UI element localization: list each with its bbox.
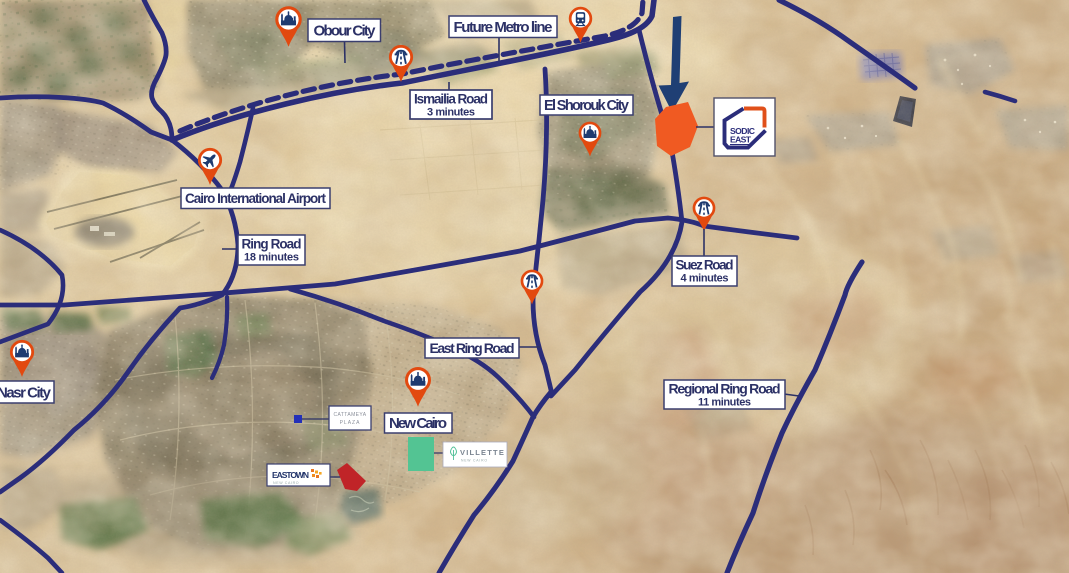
svg-text:4 minutes: 4 minutes xyxy=(681,273,729,285)
svg-text:Obour City: Obour City xyxy=(314,23,377,40)
svg-text:Nasr City: Nasr City xyxy=(0,385,52,402)
svg-text:CATTAMEYA: CATTAMEYA xyxy=(333,412,366,418)
svg-text:EAST: EAST xyxy=(730,135,752,145)
svg-text:Regional Ring Road: Regional Ring Road xyxy=(669,381,781,397)
svg-text:PLAZA: PLAZA xyxy=(340,420,361,426)
svg-text:Ring Road: Ring Road xyxy=(242,237,302,252)
svg-text:VILLETTE: VILLETTE xyxy=(460,448,505,457)
svg-text:NEW CAIRO: NEW CAIRO xyxy=(461,459,488,463)
svg-text:Ismailia Road: Ismailia Road xyxy=(414,92,488,107)
svg-text:EASTOWN: EASTOWN xyxy=(272,470,309,480)
svg-text:Suez Road: Suez Road xyxy=(676,258,734,273)
svg-text:3 minutes: 3 minutes xyxy=(427,107,475,119)
svg-text:Future Metro line: Future Metro line xyxy=(454,19,553,36)
svg-text:18 minutes: 18 minutes xyxy=(244,252,299,264)
svg-text:Cairo International Airport: Cairo International Airport xyxy=(185,191,327,206)
svg-text:El Shorouk City: El Shorouk City xyxy=(544,98,629,114)
svg-text:New Cairo: New Cairo xyxy=(389,415,447,432)
svg-text:NEW CAIRO: NEW CAIRO xyxy=(273,481,299,485)
svg-text:East Ring Road: East Ring Road xyxy=(430,340,515,356)
svg-text:11 minutes: 11 minutes xyxy=(698,397,751,409)
